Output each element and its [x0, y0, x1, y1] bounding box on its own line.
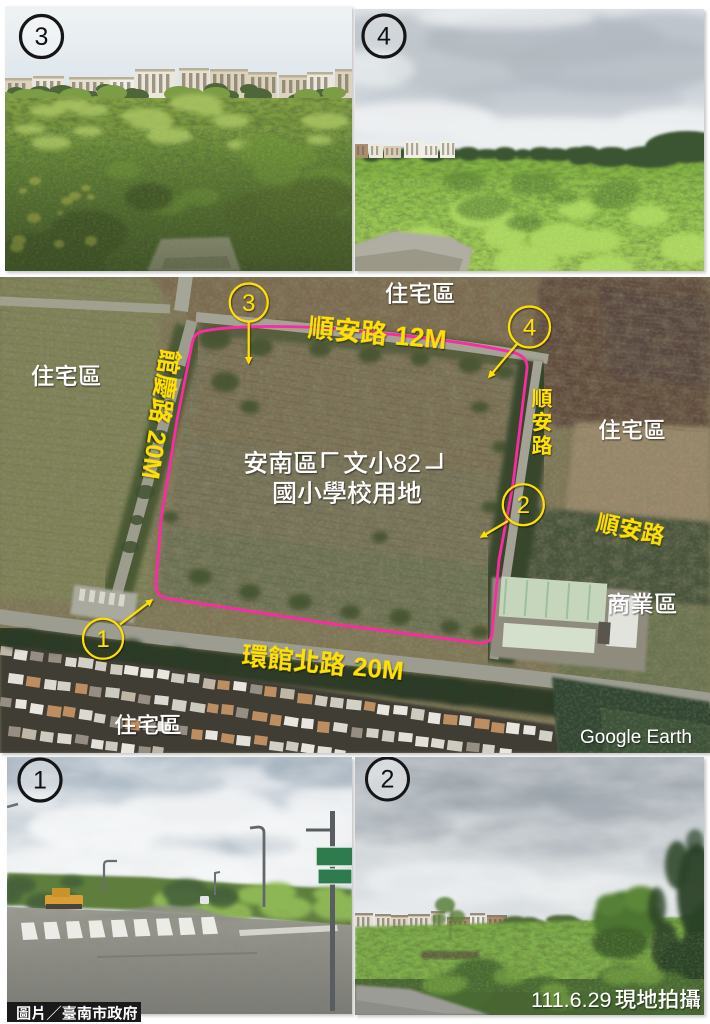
- svg-text:82: 82: [393, 450, 421, 478]
- svg-text:12M: 12M: [394, 321, 448, 356]
- svg-text:3: 3: [35, 23, 49, 51]
- svg-text:1: 1: [96, 626, 109, 653]
- svg-text:Google Earth: Google Earth: [580, 727, 692, 748]
- svg-text:2: 2: [381, 766, 395, 794]
- svg-text:2: 2: [517, 492, 530, 519]
- svg-text:111.6.29: 111.6.29: [531, 988, 612, 1012]
- svg-text:4: 4: [523, 315, 536, 342]
- svg-text:20M: 20M: [352, 651, 405, 686]
- svg-text:1: 1: [33, 767, 47, 795]
- svg-text:4: 4: [377, 23, 391, 51]
- svg-text:3: 3: [242, 290, 255, 317]
